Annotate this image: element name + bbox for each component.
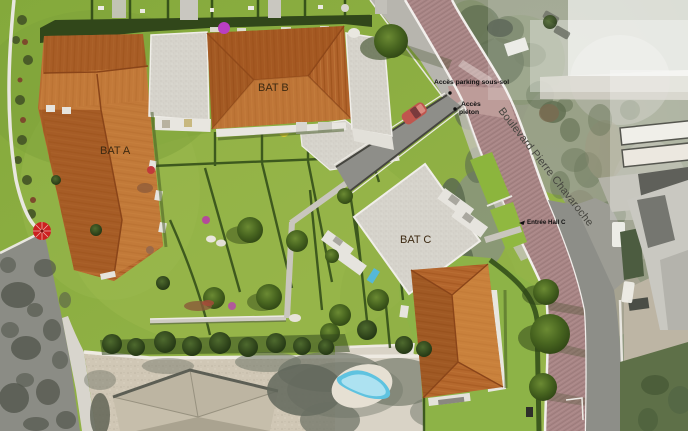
svg-text:BAT A: BAT A [100,145,131,157]
svg-text:piéton: piéton [459,109,479,116]
svg-text:Accès parking sous-sol: Accès parking sous-sol [434,79,509,86]
svg-text:BAT C: BAT C [400,234,431,246]
svg-text:Accès: Accès [461,101,481,108]
svg-text:BAT B: BAT B [258,82,289,94]
svg-text:Entrée Hall C: Entrée Hall C [527,219,566,226]
